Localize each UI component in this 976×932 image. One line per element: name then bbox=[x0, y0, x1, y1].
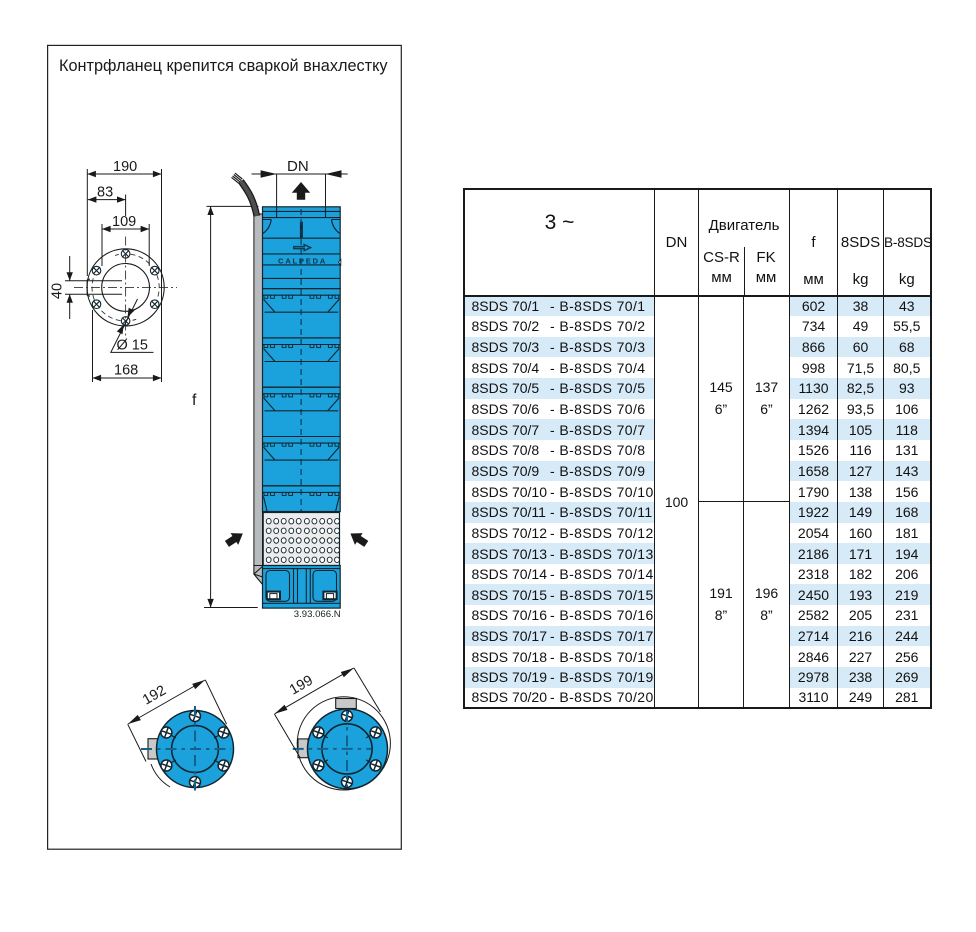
svg-text:DN: DN bbox=[287, 158, 309, 175]
svg-text:Контрфланец крепится сваркой в: Контрфланец крепится сваркой внахлестку bbox=[59, 57, 388, 75]
svg-text:3.93.066.N: 3.93.066.N bbox=[294, 609, 341, 620]
svg-text:Ø 15: Ø 15 bbox=[117, 338, 148, 354]
svg-text:f: f bbox=[192, 392, 197, 409]
svg-text:83: 83 bbox=[97, 185, 113, 201]
svg-text:190: 190 bbox=[113, 159, 137, 175]
svg-text:40: 40 bbox=[50, 283, 66, 299]
svg-text:109: 109 bbox=[112, 214, 136, 230]
svg-text:168: 168 bbox=[114, 363, 138, 379]
svg-text:CALPEDA: CALPEDA bbox=[278, 256, 327, 265]
